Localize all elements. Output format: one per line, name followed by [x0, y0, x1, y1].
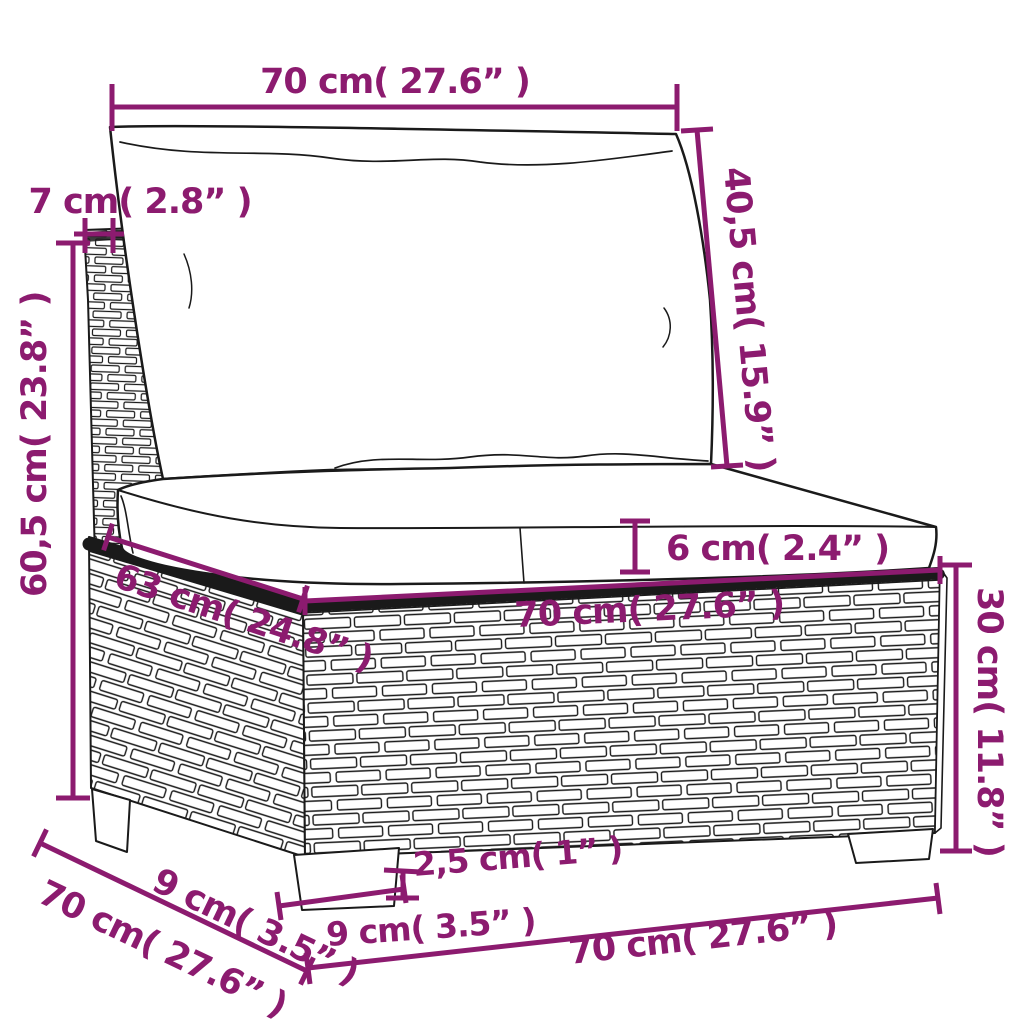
diagram-canvas: 70 cm( 27.6” ) 7 cm( 2.8” ) 40,5 cm( 15.… — [0, 0, 1024, 1024]
dimension-tick — [936, 883, 940, 914]
sofa-drawing — [82, 126, 947, 910]
leg-front-right — [848, 829, 933, 863]
overall-height-label: 60,5 cm( 23.8” ) — [15, 292, 55, 597]
product-dimension-diagram: 70 cm( 27.6” ) 7 cm( 2.8” ) 40,5 cm( 15.… — [0, 0, 1024, 1024]
cushion-thickness-label: 6 cm( 2.4” ) — [666, 529, 889, 569]
dimension-tick — [711, 465, 743, 467]
dim-overall-height — [56, 243, 90, 798]
top-width-label: 70 cm( 27.6” ) — [260, 62, 530, 102]
dimension-tick — [681, 129, 713, 131]
post-width-label: 7 cm( 2.8” ) — [28, 182, 251, 222]
back-pillow — [110, 126, 713, 479]
leg-back-left — [92, 789, 130, 852]
base-height-label: 30 cm( 11.8” ) — [969, 587, 1009, 857]
bottom-width-label: 70 cm( 27.6” ) — [567, 904, 840, 973]
